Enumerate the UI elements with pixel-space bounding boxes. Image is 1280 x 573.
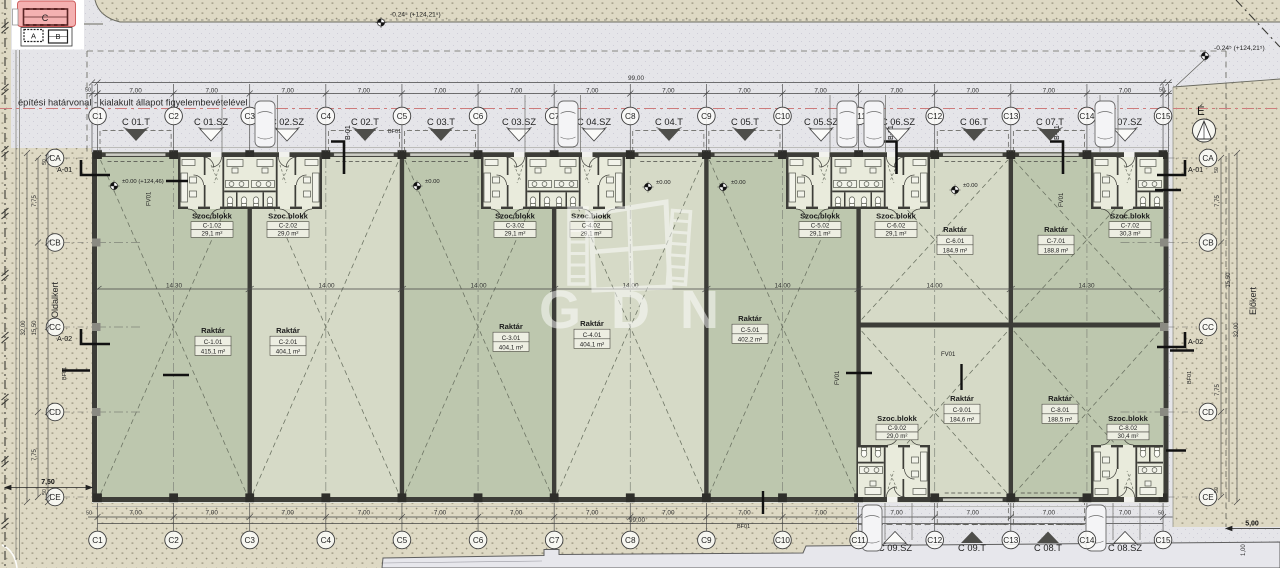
- svg-text:7,00: 7,00: [434, 510, 447, 517]
- svg-text:C-1.01: C-1.01: [204, 339, 223, 346]
- svg-text:A-01: A-01: [1188, 165, 1203, 174]
- svg-text:Raktár: Raktár: [276, 326, 300, 335]
- svg-text:C1: C1: [92, 112, 103, 121]
- svg-text:C5: C5: [397, 536, 408, 545]
- svg-text:B: B: [55, 32, 60, 41]
- svg-text:7,00: 7,00: [738, 510, 751, 517]
- svg-text:C14: C14: [1079, 112, 1094, 121]
- svg-text:7,00: 7,00: [890, 510, 903, 517]
- svg-text:30,4 m²: 30,4 m²: [1118, 433, 1139, 440]
- svg-text:7,00: 7,00: [967, 510, 980, 517]
- svg-text:C6: C6: [473, 112, 484, 121]
- svg-text:30,3 m²: 30,3 m²: [1120, 231, 1141, 238]
- svg-text:FV01: FV01: [941, 352, 956, 358]
- svg-text:Szoc.blokk: Szoc.blokk: [877, 414, 917, 423]
- svg-text:C-9.02: C-9.02: [888, 425, 907, 432]
- svg-text:-0.24⁵ (+124,21⁵): -0.24⁵ (+124,21⁵): [1214, 45, 1265, 52]
- svg-text:A-02: A-02: [1188, 337, 1203, 346]
- svg-text:32,00: 32,00: [21, 320, 27, 336]
- svg-text:Előkert: Előkert: [1248, 286, 1258, 315]
- svg-text:C 05.SZ: C 05.SZ: [804, 117, 838, 127]
- svg-text:7,00: 7,00: [1043, 87, 1056, 94]
- svg-text:C11: C11: [851, 536, 866, 545]
- svg-text:C-7.02: C-7.02: [1121, 223, 1140, 230]
- svg-text:C5: C5: [397, 112, 408, 121]
- svg-text:Oldalkert: Oldalkert: [50, 281, 60, 318]
- svg-text:7,75: 7,75: [1215, 195, 1221, 207]
- svg-text:C2: C2: [168, 536, 179, 545]
- svg-text:C8: C8: [625, 112, 636, 121]
- svg-text:7,00: 7,00: [510, 510, 523, 517]
- svg-text:404,1 m²: 404,1 m²: [276, 349, 300, 356]
- svg-text:14.00: 14.00: [319, 283, 335, 290]
- svg-text:15,50: 15,50: [1226, 272, 1232, 288]
- svg-text:29,1 m²: 29,1 m²: [202, 231, 223, 238]
- svg-text:Szoc.blokk: Szoc.blokk: [268, 212, 308, 221]
- svg-text:C13: C13: [1003, 112, 1018, 121]
- svg-text:Raktár: Raktár: [201, 326, 225, 335]
- svg-text:50: 50: [85, 88, 91, 94]
- svg-text:C 04.SZ: C 04.SZ: [577, 117, 611, 127]
- svg-text:29,0 m²: 29,0 m²: [887, 433, 908, 440]
- svg-text:CC: CC: [1202, 323, 1214, 332]
- svg-text:CA: CA: [1202, 154, 1214, 163]
- svg-text:C 06.SZ: C 06.SZ: [881, 117, 915, 127]
- svg-text:CE: CE: [1202, 493, 1214, 502]
- svg-text:C 09.T: C 09.T: [958, 543, 986, 553]
- svg-text:7,00: 7,00: [282, 510, 295, 517]
- svg-text:C 03.T: C 03.T: [427, 117, 455, 127]
- svg-text:7,00: 7,00: [205, 87, 218, 94]
- svg-text:184,9 m²: 184,9 m²: [943, 248, 967, 255]
- svg-text:C6: C6: [473, 536, 484, 545]
- svg-text:Raktár: Raktár: [499, 322, 523, 331]
- svg-text:-0.24⁵ (+124,21⁵): -0.24⁵ (+124,21⁵): [390, 12, 441, 19]
- svg-text:C-2.02: C-2.02: [279, 223, 298, 230]
- svg-text:7,00: 7,00: [282, 87, 295, 94]
- svg-text:Szoc.blokk: Szoc.blokk: [1110, 212, 1150, 221]
- svg-text:C9: C9: [701, 536, 712, 545]
- svg-text:C-5.02: C-5.02: [811, 223, 830, 230]
- svg-text:7,00: 7,00: [662, 87, 675, 94]
- svg-text:C7: C7: [549, 536, 560, 545]
- svg-text:7,75: 7,75: [32, 449, 38, 461]
- svg-text:29,1 m²: 29,1 m²: [505, 231, 526, 238]
- svg-text:Raktár: Raktár: [943, 225, 967, 234]
- svg-text:C3: C3: [244, 112, 255, 121]
- svg-text:C1: C1: [92, 536, 103, 545]
- svg-text:7,00: 7,00: [358, 510, 371, 517]
- svg-text:15,50: 15,50: [32, 320, 38, 336]
- svg-text:50: 50: [42, 489, 48, 495]
- svg-text:±0.00: ±0.00: [656, 180, 671, 186]
- svg-text:C9: C9: [701, 112, 712, 121]
- svg-text:C 01.T: C 01.T: [122, 117, 150, 127]
- svg-text:C10: C10: [775, 536, 790, 545]
- svg-text:C4: C4: [321, 112, 332, 121]
- svg-text:C15: C15: [1156, 112, 1171, 121]
- svg-text:50: 50: [1158, 511, 1164, 517]
- svg-text:C-2.01: C-2.01: [279, 339, 298, 346]
- svg-text:C2: C2: [168, 112, 179, 121]
- svg-text:7,00: 7,00: [1043, 510, 1056, 517]
- svg-text:7,75: 7,75: [32, 195, 38, 207]
- svg-text:7,50: 7,50: [41, 479, 55, 486]
- svg-text:99,00: 99,00: [628, 75, 644, 82]
- svg-text:7,75: 7,75: [1215, 384, 1221, 396]
- svg-text:C 08.T: C 08.T: [1034, 543, 1062, 553]
- svg-text:50: 50: [86, 511, 92, 517]
- svg-text:7,00: 7,00: [510, 87, 523, 94]
- svg-text:BF01: BF01: [1187, 371, 1193, 384]
- svg-text:50: 50: [1159, 88, 1165, 94]
- svg-text:14.30: 14.30: [166, 283, 182, 290]
- svg-text:C 04.T: C 04.T: [655, 117, 683, 127]
- svg-text:É: É: [1197, 105, 1205, 118]
- svg-text:7,00: 7,00: [434, 87, 447, 94]
- svg-text:7,00: 7,00: [814, 510, 827, 517]
- svg-text:Raktár: Raktár: [1044, 225, 1068, 234]
- svg-text:C-3.02: C-3.02: [506, 223, 525, 230]
- svg-text:GDN: GDN: [539, 280, 749, 340]
- svg-text:7,00: 7,00: [1119, 510, 1132, 517]
- svg-text:415,1 m²: 415,1 m²: [201, 349, 225, 356]
- svg-text:C-8.02: C-8.02: [1119, 425, 1138, 432]
- svg-text:Szoc.blokk: Szoc.blokk: [495, 212, 535, 221]
- svg-text:7,00: 7,00: [205, 510, 218, 517]
- svg-text:Raktár: Raktár: [1048, 394, 1072, 403]
- svg-text:C12: C12: [927, 536, 942, 545]
- svg-text:50: 50: [42, 159, 48, 165]
- svg-text:FV01: FV01: [147, 191, 153, 206]
- svg-text:C: C: [42, 13, 49, 23]
- svg-text:C12: C12: [927, 112, 942, 121]
- svg-text:29,0 m²: 29,0 m²: [278, 231, 299, 238]
- svg-text:7,00: 7,00: [662, 510, 675, 517]
- svg-text:14.30: 14.30: [1079, 283, 1095, 290]
- svg-text:5,00: 5,00: [1245, 521, 1259, 528]
- svg-text:188,5 m²: 188,5 m²: [1048, 417, 1072, 424]
- svg-text:±0.00: ±0.00: [425, 179, 440, 185]
- svg-text:7,00: 7,00: [967, 87, 980, 94]
- svg-text:B-01: B-01: [345, 125, 352, 140]
- svg-text:14.00: 14.00: [471, 283, 487, 290]
- svg-text:404,1 m²: 404,1 m²: [499, 345, 523, 352]
- svg-text:C-8.01: C-8.01: [1051, 407, 1070, 414]
- svg-text:FV01: FV01: [1059, 192, 1065, 207]
- svg-text:C3: C3: [244, 536, 255, 545]
- svg-text:7,00: 7,00: [1119, 87, 1132, 94]
- svg-text:C 06.T: C 06.T: [960, 117, 988, 127]
- svg-text:A-01: A-01: [57, 165, 72, 174]
- svg-text:Szoc.blokk: Szoc.blokk: [800, 212, 840, 221]
- svg-text:Raktár: Raktár: [950, 394, 974, 403]
- svg-text:Szoc.blokk: Szoc.blokk: [192, 212, 232, 221]
- svg-text:C4: C4: [321, 536, 332, 545]
- svg-text:C 02.T: C 02.T: [351, 117, 379, 127]
- svg-text:Szoc.blokk: Szoc.blokk: [876, 212, 916, 221]
- svg-text:188,8 m²: 188,8 m²: [1044, 248, 1068, 255]
- svg-text:±0.00: ±0.00: [731, 180, 746, 186]
- svg-text:C14: C14: [1079, 536, 1094, 545]
- svg-text:7,00: 7,00: [129, 510, 142, 517]
- svg-text:7,00: 7,00: [738, 87, 751, 94]
- svg-text:404,1 m²: 404,1 m²: [580, 342, 604, 349]
- svg-text:50: 50: [1214, 167, 1220, 173]
- svg-text:7,00: 7,00: [890, 87, 903, 94]
- svg-text:±0.00 (+124,46): ±0.00 (+124,46): [122, 179, 164, 185]
- svg-text:29,1 m²: 29,1 m²: [810, 231, 831, 238]
- svg-text:C13: C13: [1003, 536, 1018, 545]
- svg-text:±0.00: ±0.00: [963, 183, 978, 189]
- svg-text:C15: C15: [1156, 536, 1171, 545]
- svg-text:C8: C8: [625, 536, 636, 545]
- svg-text:CD: CD: [1202, 408, 1214, 417]
- svg-text:Szoc.blokk: Szoc.blokk: [1108, 414, 1148, 423]
- svg-text:7,00: 7,00: [814, 87, 827, 94]
- svg-text:C-9.01: C-9.01: [953, 407, 972, 414]
- svg-text:14.00: 14.00: [775, 283, 791, 290]
- svg-text:CB: CB: [1202, 238, 1214, 247]
- svg-text:C-3.01: C-3.01: [502, 335, 521, 342]
- svg-text:A: A: [31, 32, 36, 41]
- svg-text:C-1.02: C-1.02: [203, 223, 222, 230]
- svg-text:50: 50: [1214, 487, 1220, 493]
- svg-text:C 07.T: C 07.T: [1036, 117, 1064, 127]
- svg-text:C-6.01: C-6.01: [946, 238, 965, 245]
- svg-text:C 03.SZ: C 03.SZ: [502, 117, 536, 127]
- svg-text:14.00: 14.00: [927, 283, 943, 290]
- svg-text:184,6 m²: 184,6 m²: [950, 417, 974, 424]
- svg-text:C-6.02: C-6.02: [887, 223, 906, 230]
- svg-text:BF01: BF01: [62, 367, 68, 380]
- svg-text:építési határvonal - kialakult: építési határvonal - kialakult állapot f…: [18, 98, 247, 108]
- svg-text:7,00: 7,00: [358, 87, 371, 94]
- svg-text:29,1 m²: 29,1 m²: [886, 231, 907, 238]
- svg-text:FV01: FV01: [835, 370, 841, 385]
- svg-text:C-7.01: C-7.01: [1047, 238, 1066, 245]
- svg-text:C 05.T: C 05.T: [731, 117, 759, 127]
- svg-text:32,00: 32,00: [1234, 322, 1240, 338]
- svg-text:7,00: 7,00: [586, 510, 599, 517]
- svg-text:1,00: 1,00: [1241, 544, 1247, 556]
- svg-text:BF01: BF01: [737, 524, 750, 530]
- svg-text:7,00: 7,00: [586, 87, 599, 94]
- svg-text:99,00: 99,00: [629, 517, 645, 524]
- svg-text:7,00: 7,00: [129, 87, 142, 94]
- svg-text:C 01.SZ: C 01.SZ: [194, 117, 228, 127]
- svg-text:C10: C10: [775, 112, 790, 121]
- svg-text:A-02: A-02: [57, 334, 72, 343]
